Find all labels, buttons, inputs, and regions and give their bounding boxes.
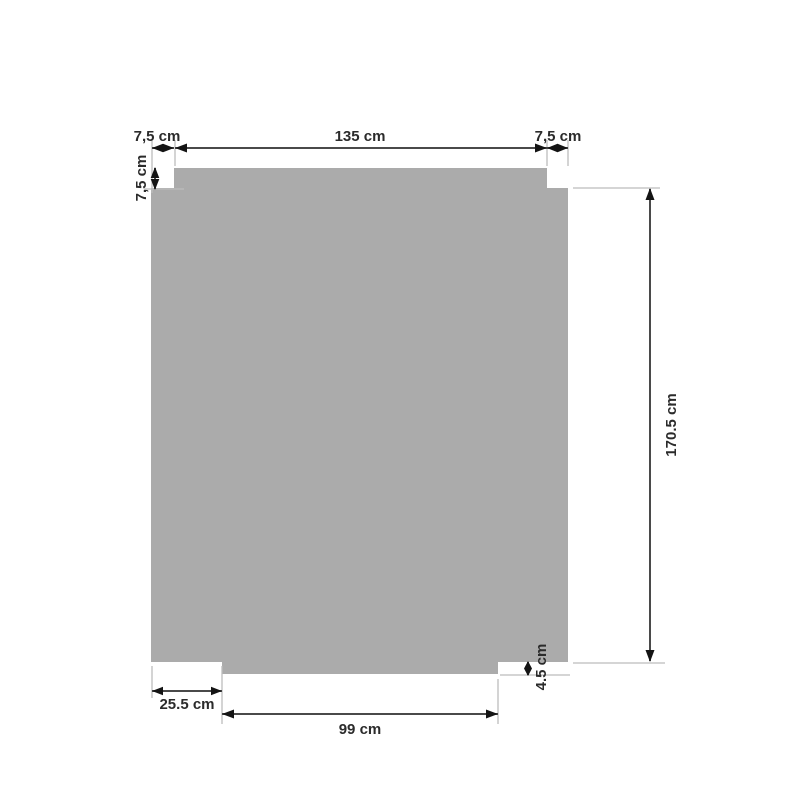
label-bottom-left-width: 25.5 cm [159, 696, 214, 713]
label-top-left-width: 7,5 cm [134, 128, 181, 145]
label-right-height: 170.5 cm [663, 393, 680, 456]
label-top-width: 135 cm [335, 128, 386, 145]
dimension-top-left-width: 7,5 cm [134, 128, 181, 152]
arrowhead-up-icon [646, 188, 655, 200]
label-top-right-width: 7,5 cm [535, 128, 582, 145]
panel-shape [151, 168, 568, 674]
dimension-top-width: 135 cm [175, 128, 547, 153]
arrowhead-left-icon [152, 687, 163, 696]
label-bottom-center-width: 99 cm [339, 721, 382, 738]
arrowhead-down-icon [646, 650, 655, 662]
label-bottom-right-notch-depth: 4.5 cm [533, 644, 550, 691]
dimension-right-height: 170.5 cm [646, 188, 681, 662]
arrowhead-left-icon [222, 710, 234, 719]
arrowhead-right-icon [211, 687, 222, 696]
dimension-bottom-center-width: 99 cm [222, 710, 498, 739]
label-left-notch-depth: 7,5 cm [133, 155, 150, 202]
arrowhead-right-icon [486, 710, 498, 719]
dimension-bottom-left-width: 25.5 cm [152, 687, 222, 713]
dimension-diagram-page: 7,5 cm 135 cm 7,5 cm 7,5 cm [0, 0, 800, 800]
arrowhead-up-icon [524, 661, 532, 669]
dimension-diagram: 7,5 cm 135 cm 7,5 cm 7,5 cm [0, 0, 800, 800]
